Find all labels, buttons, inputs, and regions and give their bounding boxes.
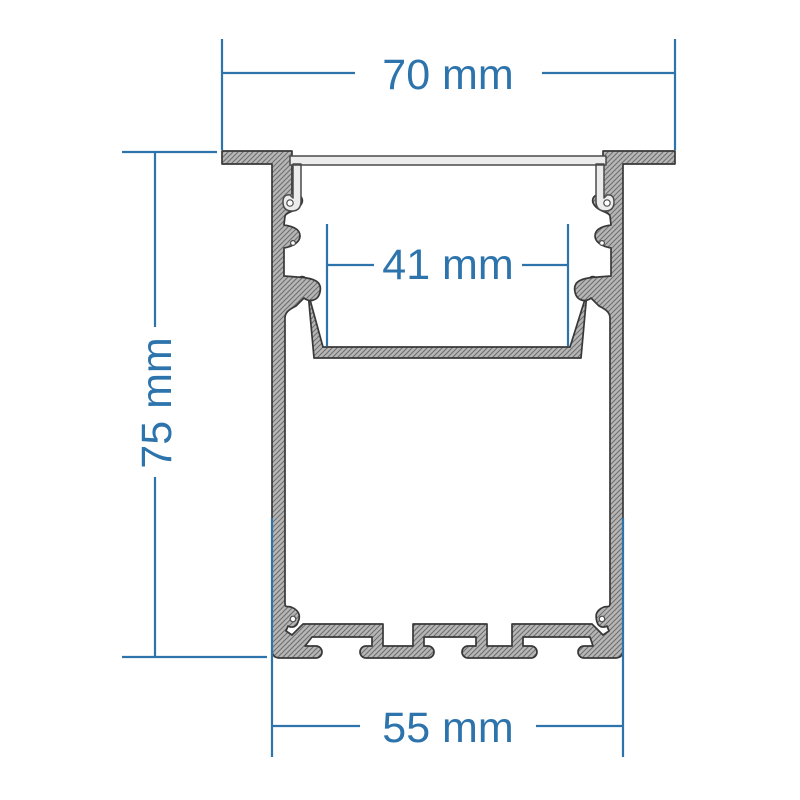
dimension-inner-width-label: 41 mm xyxy=(382,241,513,289)
profile-outline xyxy=(222,151,675,658)
dimension-height: 75 mm xyxy=(122,152,267,657)
dimension-inner-width: 41 mm xyxy=(327,224,568,346)
dimension-height-label: 75 mm xyxy=(133,337,181,468)
diffuser-cover-cross-section xyxy=(283,156,614,211)
dimension-top-width-label: 70 mm xyxy=(382,51,513,99)
mid-clip-notch-right xyxy=(600,241,605,246)
aluminum-profile-cross-section xyxy=(222,151,675,658)
dimension-top-width: 70 mm xyxy=(222,39,675,150)
corner-claw-notch-left xyxy=(290,616,296,622)
corner-claw-notch-right xyxy=(599,616,605,622)
mid-clip-notch-left xyxy=(291,241,296,246)
technical-drawing-canvas: 70 mm 41 mm 75 mm 55 mm xyxy=(0,0,800,800)
dimension-bottom-width-label: 55 mm xyxy=(382,704,513,752)
diffuser-clip-opening-left xyxy=(287,200,293,206)
diffuser-clip-opening-right xyxy=(604,200,610,206)
diffuser-shape xyxy=(283,156,614,211)
profile-drawing-svg: 70 mm 41 mm 75 mm 55 mm xyxy=(0,0,800,800)
